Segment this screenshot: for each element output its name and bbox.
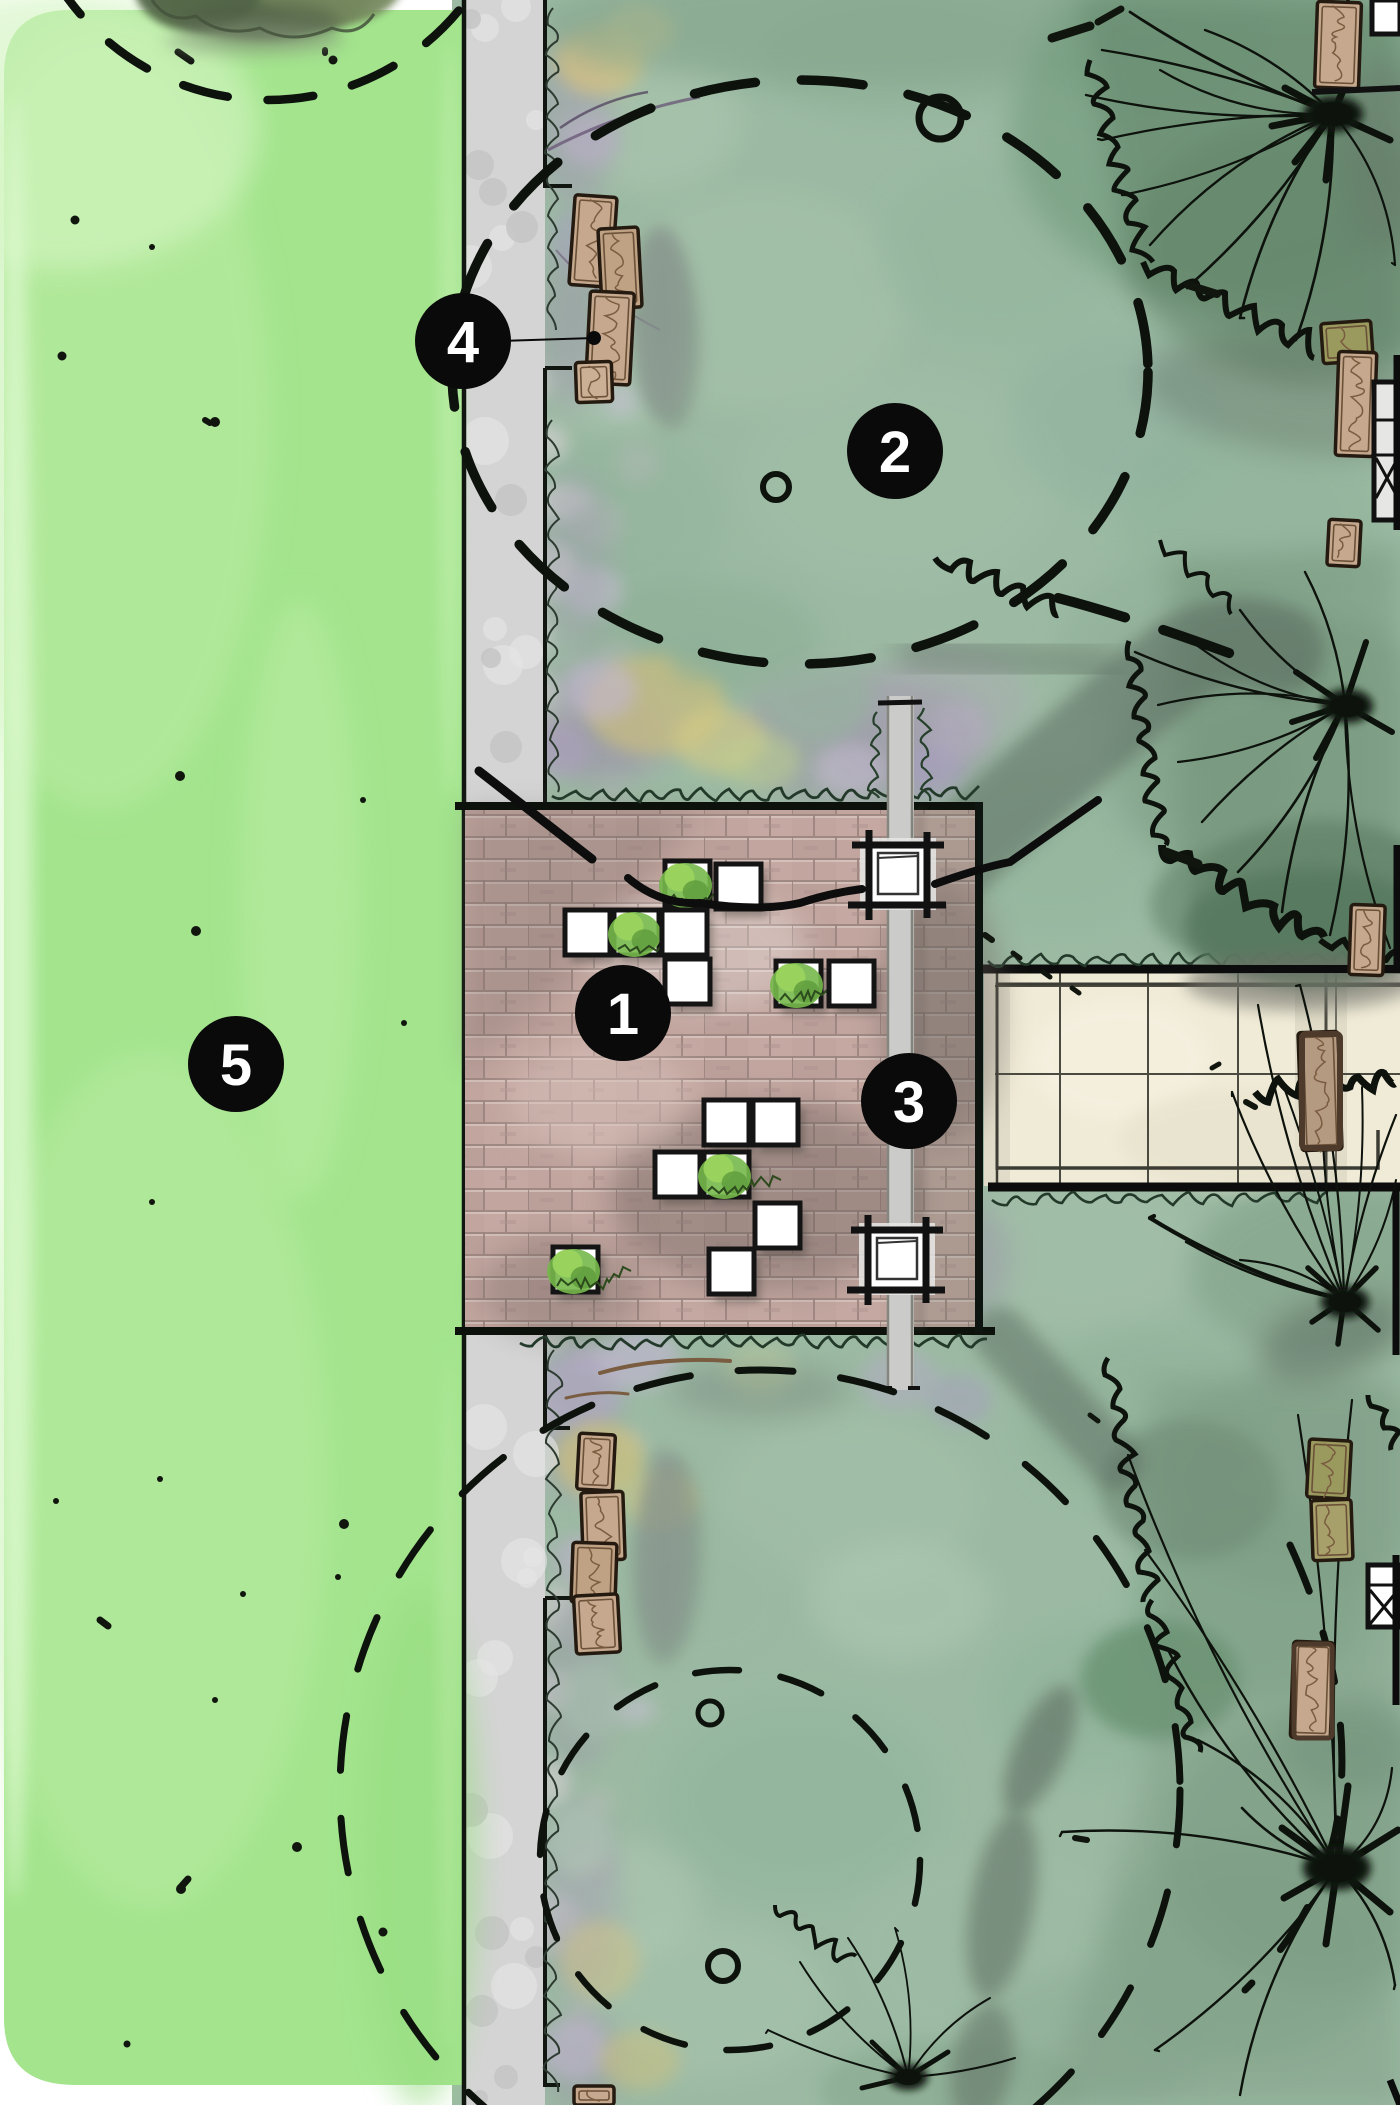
svg-text:5: 5: [220, 1033, 252, 1098]
svg-text:4: 4: [447, 310, 479, 375]
svg-text:1: 1: [607, 982, 639, 1047]
svg-text:3: 3: [893, 1070, 925, 1135]
svg-text:2: 2: [879, 420, 911, 485]
